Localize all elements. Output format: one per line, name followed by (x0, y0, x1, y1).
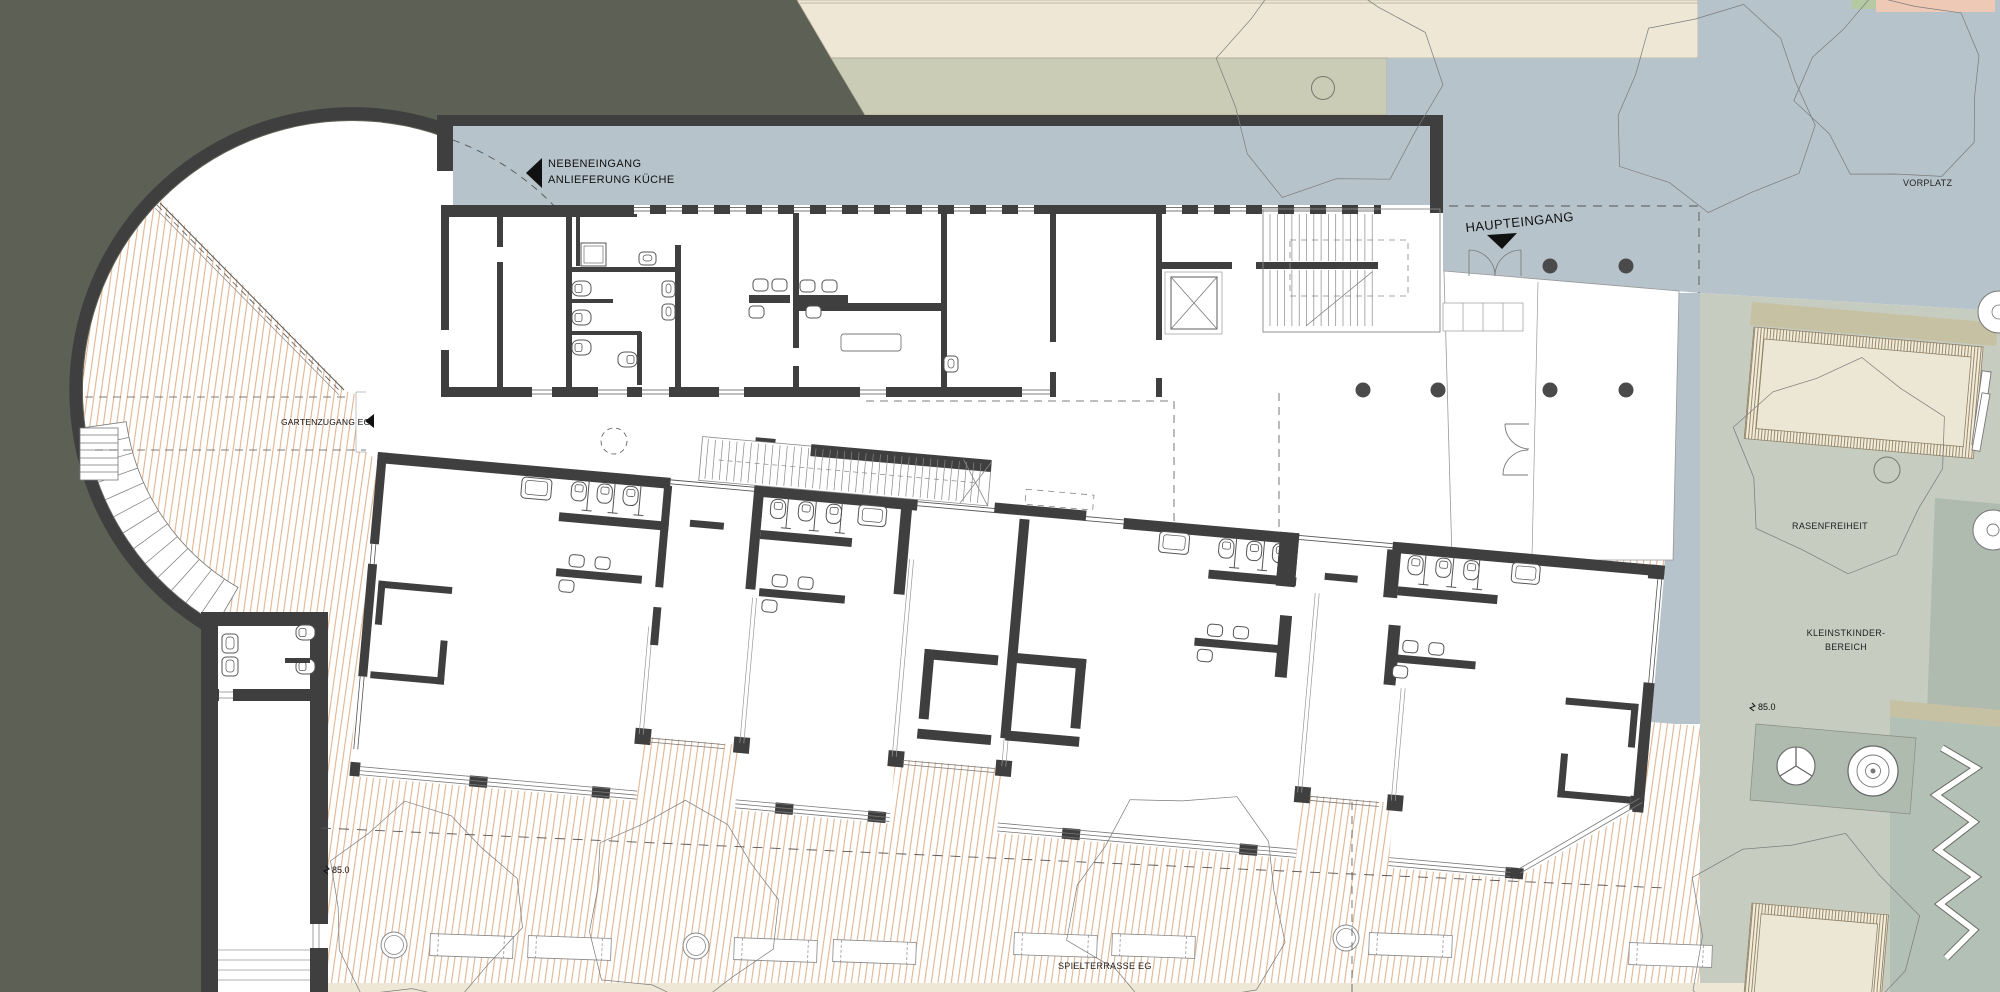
svg-text:KLEINSTKINDER-: KLEINSTKINDER- (1807, 628, 1886, 638)
svg-text:BEREICH: BEREICH (1825, 642, 1867, 652)
svg-text:RASENFREIHEIT: RASENFREIHEIT (1792, 521, 1868, 531)
svg-text:85.0: 85.0 (1758, 702, 1776, 712)
svg-text:85.0: 85.0 (332, 865, 350, 875)
svg-text:NEBENEINGANG: NEBENEINGANG (548, 158, 641, 170)
svg-text:SPIELTERRASSE EG: SPIELTERRASSE EG (1058, 961, 1152, 971)
svg-text:VORPLATZ: VORPLATZ (1903, 178, 1952, 188)
svg-text:ANLIEFERUNG KÜCHE: ANLIEFERUNG KÜCHE (548, 174, 675, 186)
svg-text:GARTENZUGANG EG: GARTENZUGANG EG (281, 417, 370, 427)
